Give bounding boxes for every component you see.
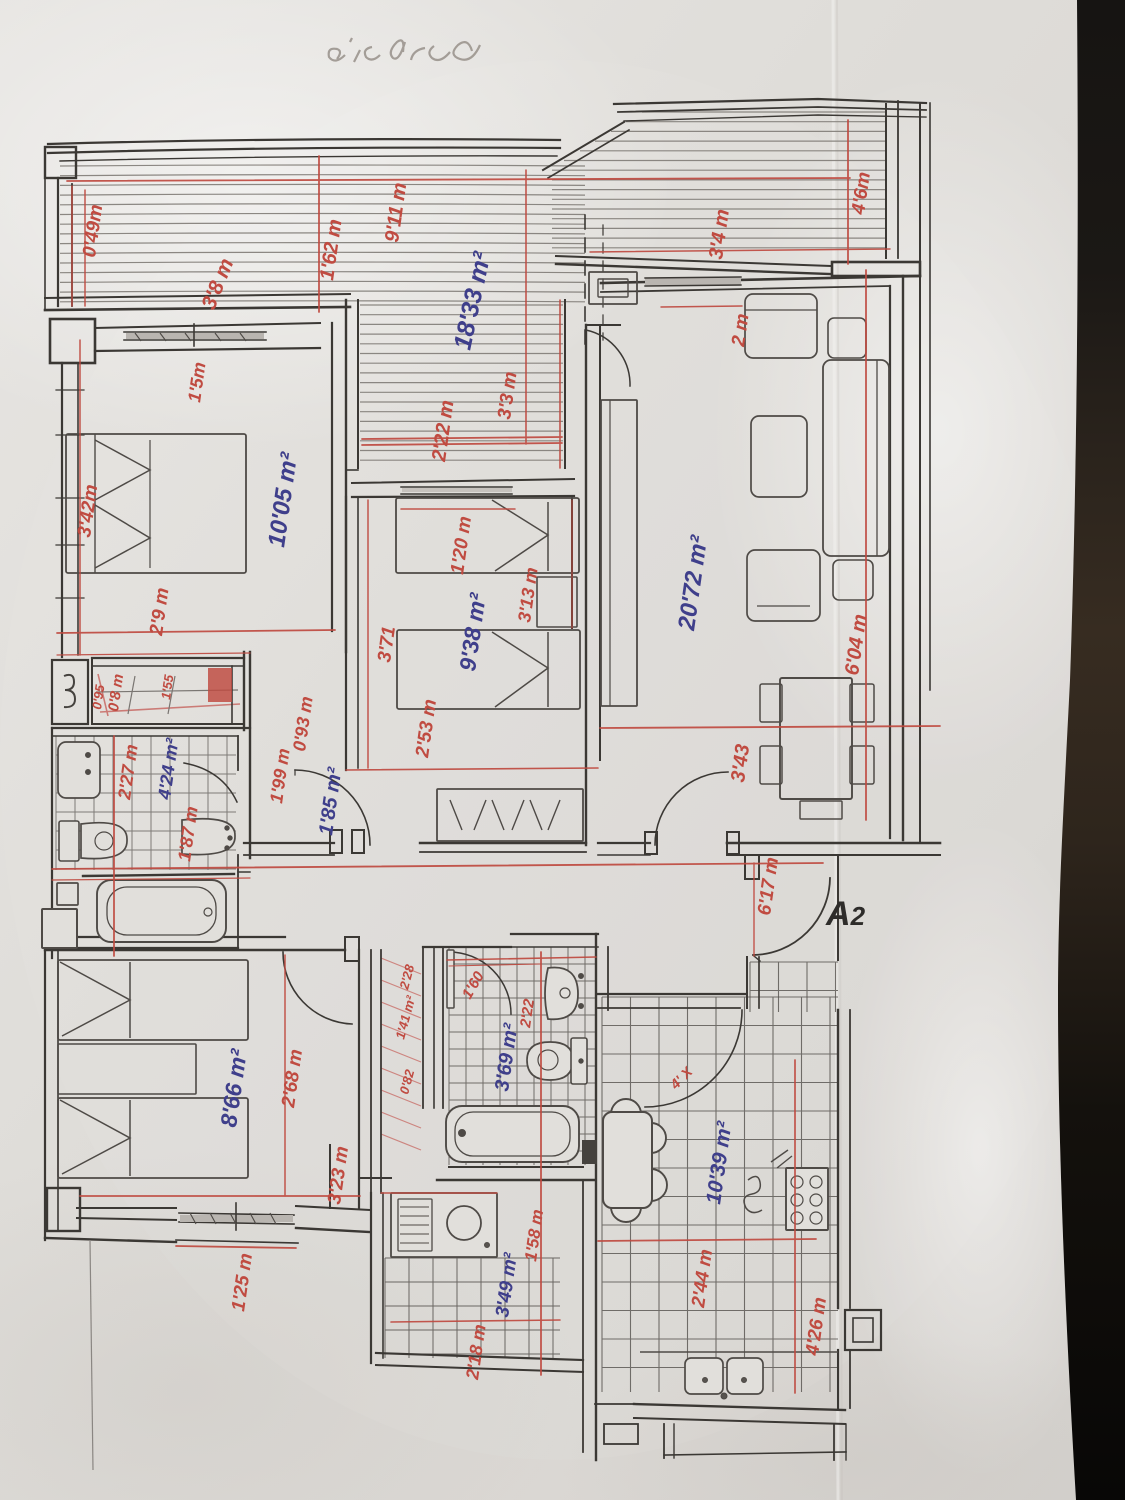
svg-text:A2: A2: [825, 895, 866, 933]
